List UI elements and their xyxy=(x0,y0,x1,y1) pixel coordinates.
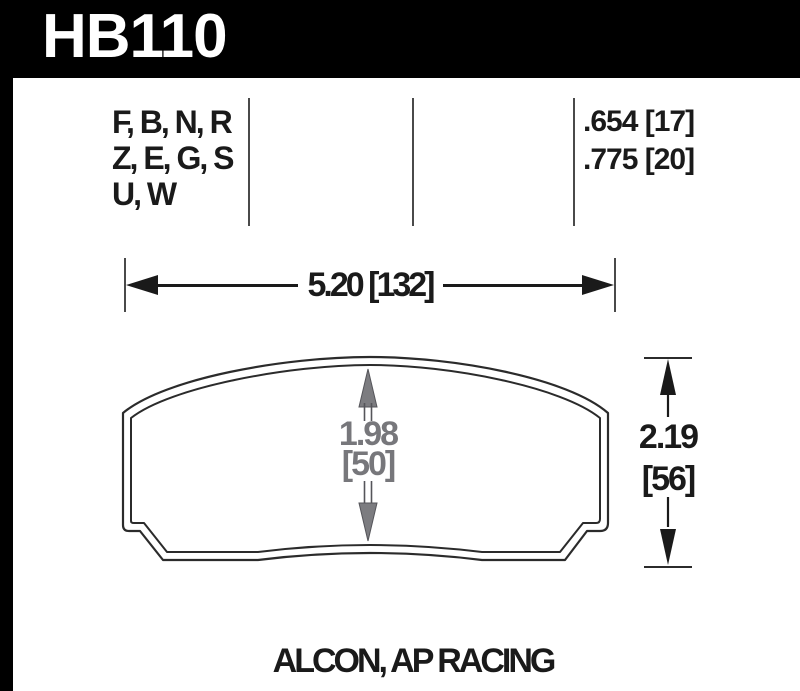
arrowhead-left-icon xyxy=(126,275,158,295)
compound-line: Z, E, G, S xyxy=(112,140,232,176)
inner-height-arrow-down-icon xyxy=(359,503,377,541)
column-divider-line xyxy=(248,98,250,226)
overall-height-arrow-down-icon xyxy=(660,529,676,565)
part-number-title: HB110 xyxy=(42,6,227,68)
dimension-line xyxy=(443,284,583,287)
header-bar: HB110 xyxy=(0,0,800,78)
brake-pad-spec-sheet: HB110 F, B, N, R Z, E, G, S U, W .654 [1… xyxy=(0,0,800,691)
overall-height-arrow-up-icon xyxy=(660,359,676,395)
thickness-value: .775 [20] xyxy=(583,141,694,179)
compound-line: U, W xyxy=(112,176,232,212)
compound-letters: F, B, N, R Z, E, G, S U, W xyxy=(112,104,232,212)
arrowhead-right-icon xyxy=(582,275,614,295)
inner-height-arrow-up-icon xyxy=(359,369,377,407)
overall-height-label-mm: [56] xyxy=(620,462,716,496)
dimension-line xyxy=(158,284,298,287)
column-divider-line xyxy=(412,98,414,226)
pad-thickness-values: .654 [17] .775 [20] xyxy=(583,103,694,179)
inner-height-label-mm: [50] xyxy=(315,447,421,481)
dimension-extension-tick xyxy=(614,258,616,312)
width-dimension: 5.20 [132] xyxy=(124,258,616,316)
left-border-bar xyxy=(0,0,13,691)
width-dimension-label: 5.20 [132] xyxy=(298,266,443,305)
applications-label: ALCON, AP RACING xyxy=(26,642,800,681)
overall-height-label: 2.19 xyxy=(620,420,716,454)
thickness-value: .654 [17] xyxy=(583,103,694,141)
column-divider-line xyxy=(573,98,575,226)
compound-line: F, B, N, R xyxy=(112,104,232,140)
width-dimension-arrow: 5.20 [132] xyxy=(126,268,614,302)
